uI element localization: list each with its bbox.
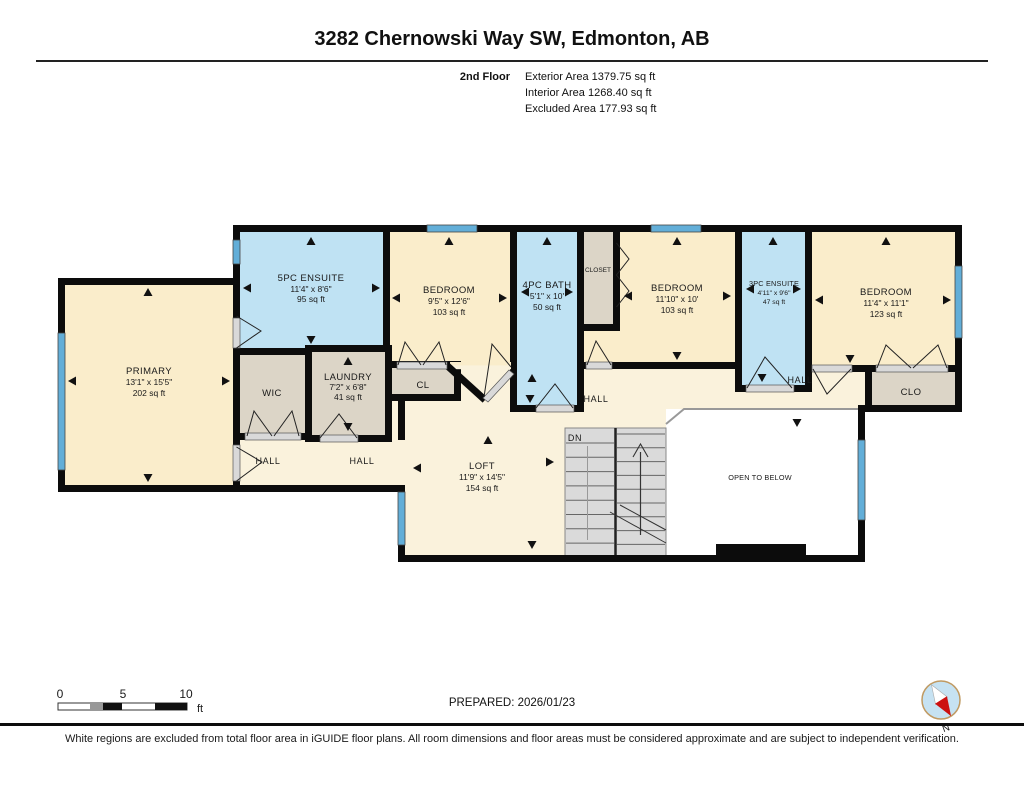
door-sill xyxy=(233,318,240,348)
room-label: BEDROOM xyxy=(860,287,912,298)
room-area: 123 sq ft xyxy=(870,309,903,319)
window xyxy=(398,492,405,545)
room-dims: 11'4" x 8'6" xyxy=(290,284,331,294)
footer-divider xyxy=(0,723,1024,726)
opening-overlay xyxy=(450,362,511,366)
door-sill xyxy=(233,445,240,481)
window xyxy=(651,225,701,232)
door-sill xyxy=(397,362,447,369)
room-label: WIC xyxy=(262,388,282,399)
room-dims: 9'5" x 12'6" xyxy=(428,296,470,306)
room-area: 47 sq ft xyxy=(763,299,785,306)
room-area: 202 sq ft xyxy=(133,388,166,398)
window xyxy=(955,266,962,338)
room-dims: 7'2" x 6'8" xyxy=(329,382,366,392)
room-area: 41 sq ft xyxy=(334,392,363,402)
room-label: PRIMARY xyxy=(126,366,172,377)
room-label: 3PC ENSUITE xyxy=(749,279,799,288)
floor-plan-canvas: PRIMARY 13'1" x 15'5" 202 sq ft 5PC ENSU… xyxy=(0,0,1024,791)
door-sill xyxy=(746,385,794,392)
room-label: 5PC ENSUITE xyxy=(278,273,345,284)
floor-plan-page: 3282 Chernowski Way SW, Edmonton, AB 2nd… xyxy=(0,0,1024,791)
window xyxy=(427,225,477,232)
hall-label: HALL xyxy=(584,394,609,404)
door-sill xyxy=(812,365,852,372)
room-label: CL xyxy=(417,380,430,391)
stairs-down-label: DN xyxy=(568,433,582,443)
room-label: BEDROOM xyxy=(651,283,703,294)
door-sill xyxy=(586,362,612,369)
room-dims: 11'10" x 10' xyxy=(656,294,699,304)
prepared-date: PREPARED: 2026/01/23 xyxy=(0,697,1024,709)
room-area: 103 sq ft xyxy=(433,307,466,317)
room-label: BEDROOM xyxy=(423,285,475,296)
door-sill xyxy=(876,365,948,372)
room-area: 154 sq ft xyxy=(466,483,499,493)
room-3pc-ensuite xyxy=(739,229,809,389)
room-area: 103 sq ft xyxy=(661,305,694,315)
hall-label: HALL xyxy=(256,456,281,466)
room-label: 4PC BATH xyxy=(523,280,572,291)
hall-label: HALL xyxy=(788,375,813,385)
room-dims: 11'4" x 11'1" xyxy=(863,298,908,308)
opening-overlay xyxy=(450,365,511,369)
door-sill xyxy=(245,433,301,440)
room-label: CLO xyxy=(901,387,922,398)
room-4pc-bath xyxy=(514,229,581,409)
room-label: LOFT xyxy=(469,461,495,472)
room-area: 50 sq ft xyxy=(533,302,562,312)
window xyxy=(58,333,65,470)
room-closet xyxy=(581,229,617,328)
hall-label: HALL xyxy=(350,456,375,466)
disclaimer-text: White regions are excluded from total fl… xyxy=(0,733,1024,745)
door-sill xyxy=(536,405,574,412)
staircase xyxy=(565,428,666,558)
room-label: CLOSET xyxy=(585,267,611,274)
open-to-below-area xyxy=(666,409,862,559)
door-sill xyxy=(320,435,358,442)
room-dims: 13'1" x 15'5" xyxy=(126,377,173,387)
room-area: 95 sq ft xyxy=(297,294,326,304)
open-to-below-label: OPEN TO BELOW xyxy=(728,473,792,482)
room-dims: 11'9" x 14'5" xyxy=(459,472,505,482)
room-dims: 5'1" x 10' xyxy=(530,291,565,301)
window xyxy=(233,240,240,264)
window xyxy=(858,440,865,520)
room-dims: 4'11" x 9'6" xyxy=(758,290,792,297)
